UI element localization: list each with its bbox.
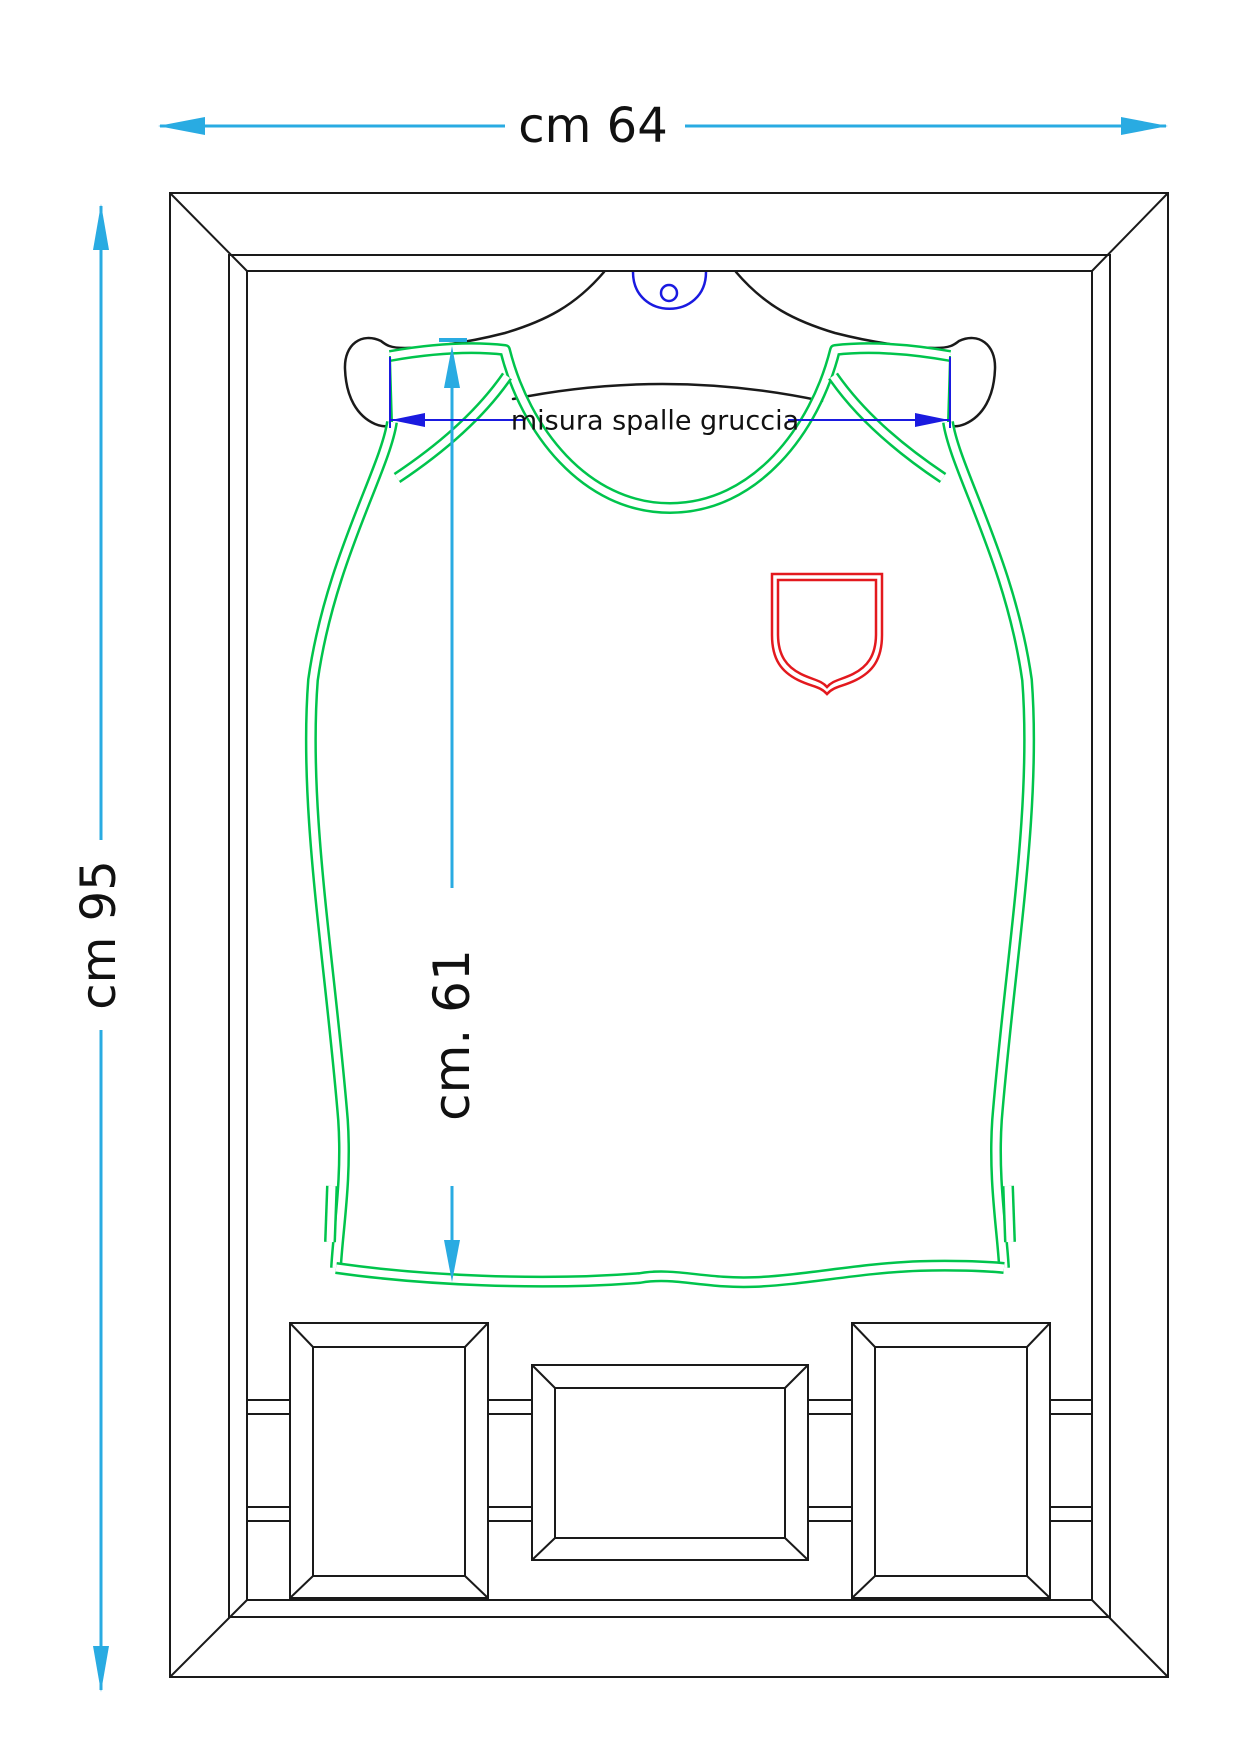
frame-miter-top-right xyxy=(1092,193,1168,271)
hanger-hook-plate xyxy=(633,272,706,309)
hanger-bottom-edge xyxy=(513,384,822,401)
jersey-length-dimension-label: cm. 61 xyxy=(423,949,481,1121)
hanger-hook-hole-icon xyxy=(661,285,677,301)
dim-shoulder: misura spalle gruccia xyxy=(390,357,950,437)
photo-frame-right xyxy=(852,1323,1050,1598)
dim-width-arrow-left xyxy=(158,117,205,135)
technical-drawing-page: cm 64 cm 95 cm. 61 misura spalle gruccia xyxy=(0,0,1240,1754)
dim-height-arrow-top xyxy=(93,204,109,250)
photo-frame-right-outer xyxy=(852,1323,1050,1598)
frame-miter-bottom-right xyxy=(1092,1600,1168,1677)
crest-inner-outline xyxy=(778,580,876,687)
photo-frame-middle xyxy=(532,1365,808,1560)
dim-jersey-length: cm. 61 xyxy=(423,340,481,1282)
height-dimension-label: cm 95 xyxy=(71,860,127,1009)
shoulder-dimension-label: misura spalle gruccia xyxy=(511,406,799,437)
dim-width: cm 64 xyxy=(158,98,1168,154)
jersey-left-side-seam xyxy=(311,422,392,1268)
photo-frame-left xyxy=(290,1323,488,1598)
photo-frame-left-outer xyxy=(290,1323,488,1598)
jersey-right-side-seam xyxy=(948,422,1029,1268)
jersey-right-slit-core xyxy=(1008,1186,1010,1242)
photo-frame-middle-outer xyxy=(532,1365,808,1560)
dim-height-arrow-bottom xyxy=(93,1646,109,1692)
dim-width-arrow-right xyxy=(1121,117,1168,135)
crest-outer-outline xyxy=(772,574,882,694)
jersey-left-slit-core xyxy=(330,1186,332,1242)
crest-shield xyxy=(772,574,882,694)
jersey xyxy=(311,348,1029,1282)
technical-drawing-canvas: cm 64 cm 95 cm. 61 misura spalle gruccia xyxy=(0,0,1240,1754)
bottom-photo-frames xyxy=(290,1323,1050,1598)
width-dimension-label: cm 64 xyxy=(518,98,667,154)
frame-miter-top-left xyxy=(170,193,247,271)
dim-height: cm 95 xyxy=(71,204,127,1692)
frame-miter-bottom-left xyxy=(170,1600,247,1677)
